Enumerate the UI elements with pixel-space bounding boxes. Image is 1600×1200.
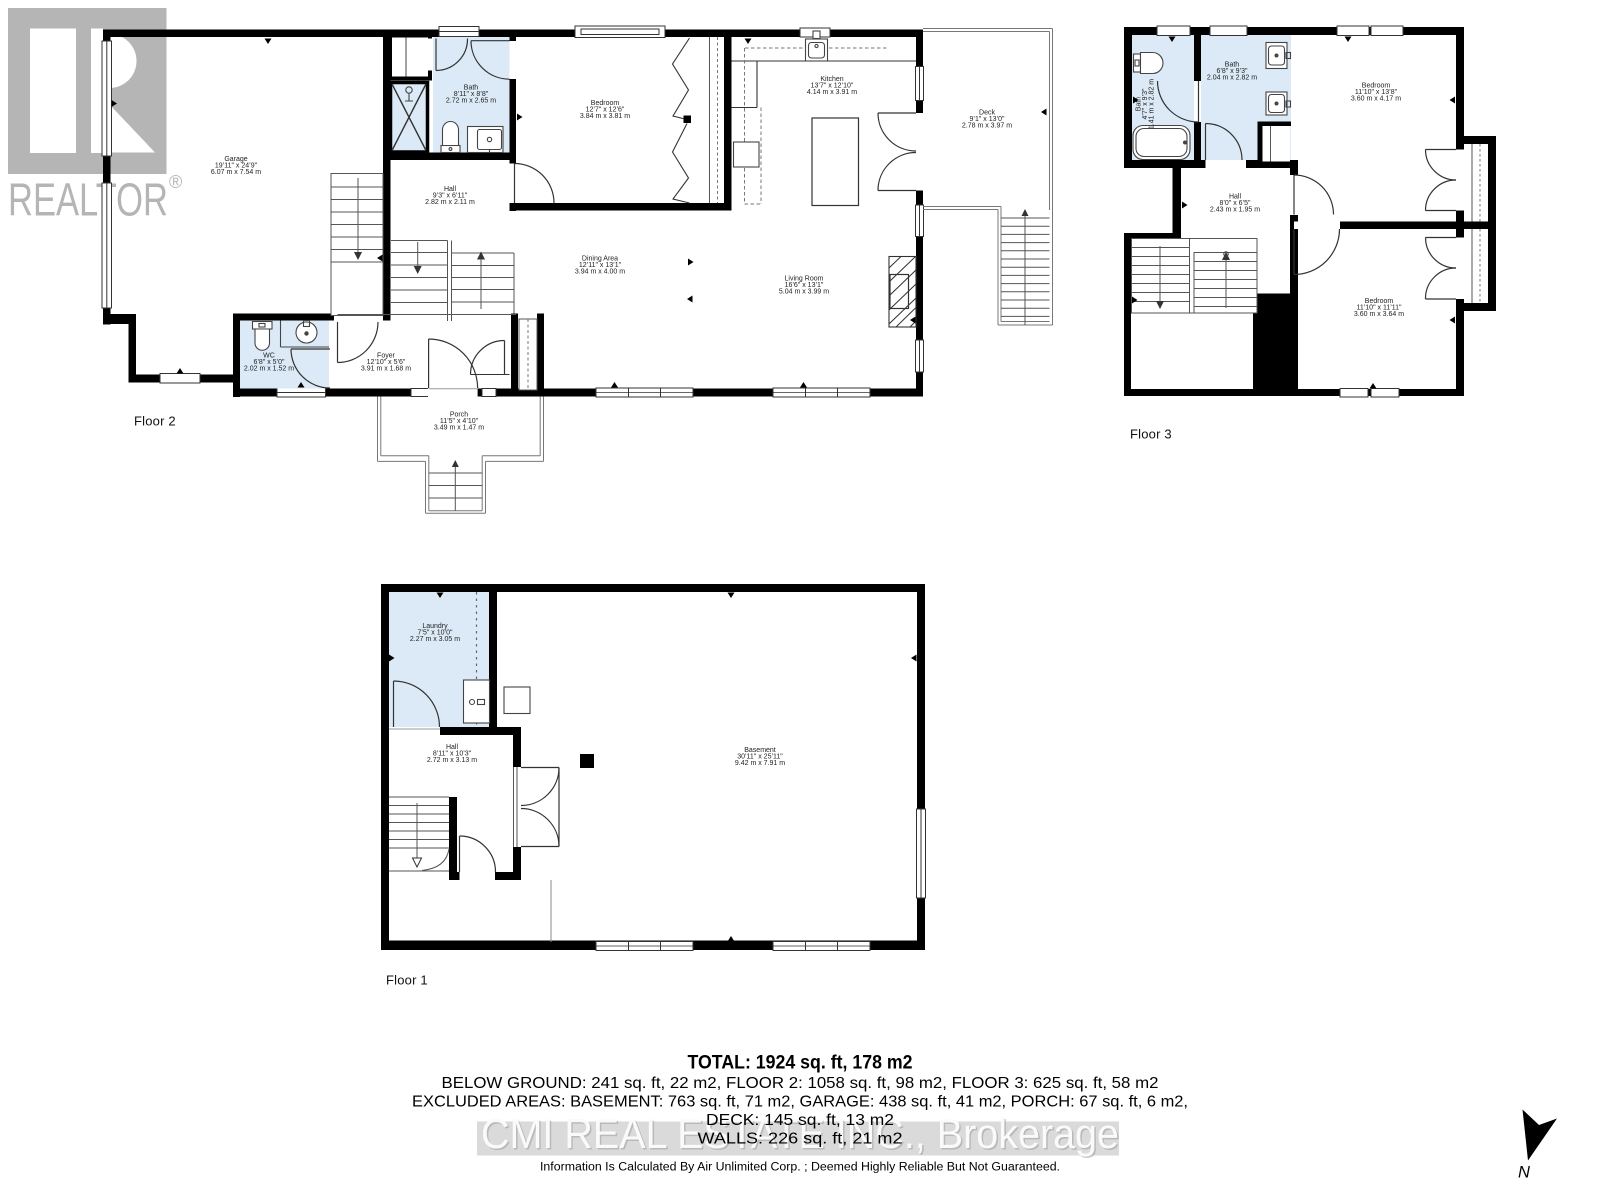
svg-text:3.60 m x 3.64 m: 3.60 m x 3.64 m — [1354, 311, 1404, 318]
svg-text:6.07 m x 7.54 m: 6.07 m x 7.54 m — [211, 169, 261, 176]
svg-text:2.82 m x 2.11 m: 2.82 m x 2.11 m — [425, 199, 475, 206]
svg-text:3.49 m x 1.47 m: 3.49 m x 1.47 m — [434, 425, 484, 432]
svg-text:Floor 3: Floor 3 — [1130, 427, 1172, 442]
svg-text:5.04 m x 3.99 m: 5.04 m x 3.99 m — [779, 289, 829, 296]
svg-text:2.72 m x 3.13 m: 2.72 m x 3.13 m — [427, 757, 477, 764]
svg-text:BELOW GROUND: 241 sq. ft, 22 m: BELOW GROUND: 241 sq. ft, 22 m2, FLOOR 2… — [442, 1075, 1159, 1092]
svg-text:2.72 m x 2.65 m: 2.72 m x 2.65 m — [446, 98, 496, 105]
svg-text:3.91 m x 1.68 m: 3.91 m x 1.68 m — [361, 366, 411, 373]
svg-text:3.84 m x 3.81 m: 3.84 m x 3.81 m — [580, 113, 630, 120]
svg-text:3.94 m x 4.00 m: 3.94 m x 4.00 m — [575, 269, 625, 276]
svg-text:REALTOR: REALTOR — [8, 174, 168, 226]
svg-text:Floor 2: Floor 2 — [134, 414, 176, 429]
svg-text:2.78 m x 3.97 m: 2.78 m x 3.97 m — [962, 123, 1012, 130]
svg-text:4.14 m x 3.91 m: 4.14 m x 3.91 m — [807, 89, 857, 96]
svg-text:DECK: 145 sq. ft, 13 m2: DECK: 145 sq. ft, 13 m2 — [706, 1112, 894, 1129]
svg-text:2.43 m x 1.95 m: 2.43 m x 1.95 m — [1210, 207, 1260, 214]
svg-text:Floor 1: Floor 1 — [386, 973, 428, 988]
svg-text:2.02 m x 1.52 m: 2.02 m x 1.52 m — [244, 366, 294, 373]
svg-text:1.41 m x 2.82 m: 1.41 m x 2.82 m — [1149, 79, 1156, 129]
svg-text:2.04 m x 2.82 m: 2.04 m x 2.82 m — [1207, 75, 1257, 82]
svg-text:TOTAL: 1924 sq. ft, 178 m2: TOTAL: 1924 sq. ft, 178 m2 — [688, 1053, 913, 1074]
svg-text:2.27 m x 3.05 m: 2.27 m x 3.05 m — [410, 636, 460, 643]
svg-text:9.42 m x 7.91 m: 9.42 m x 7.91 m — [735, 760, 785, 767]
svg-text:®: ® — [169, 172, 182, 192]
svg-text:3.60 m x 4.17 m: 3.60 m x 4.17 m — [1351, 96, 1401, 103]
svg-text:WALLS: 226 sq. ft, 21 m2: WALLS: 226 sq. ft, 21 m2 — [698, 1131, 903, 1148]
svg-text:N: N — [1518, 1164, 1530, 1182]
svg-text:Information Is Calculated By A: Information Is Calculated By Air Unlimit… — [540, 1162, 1060, 1174]
svg-text:EXCLUDED AREAS: BASEMENT: 763: EXCLUDED AREAS: BASEMENT: 763 sq. ft, 71… — [412, 1094, 1188, 1111]
